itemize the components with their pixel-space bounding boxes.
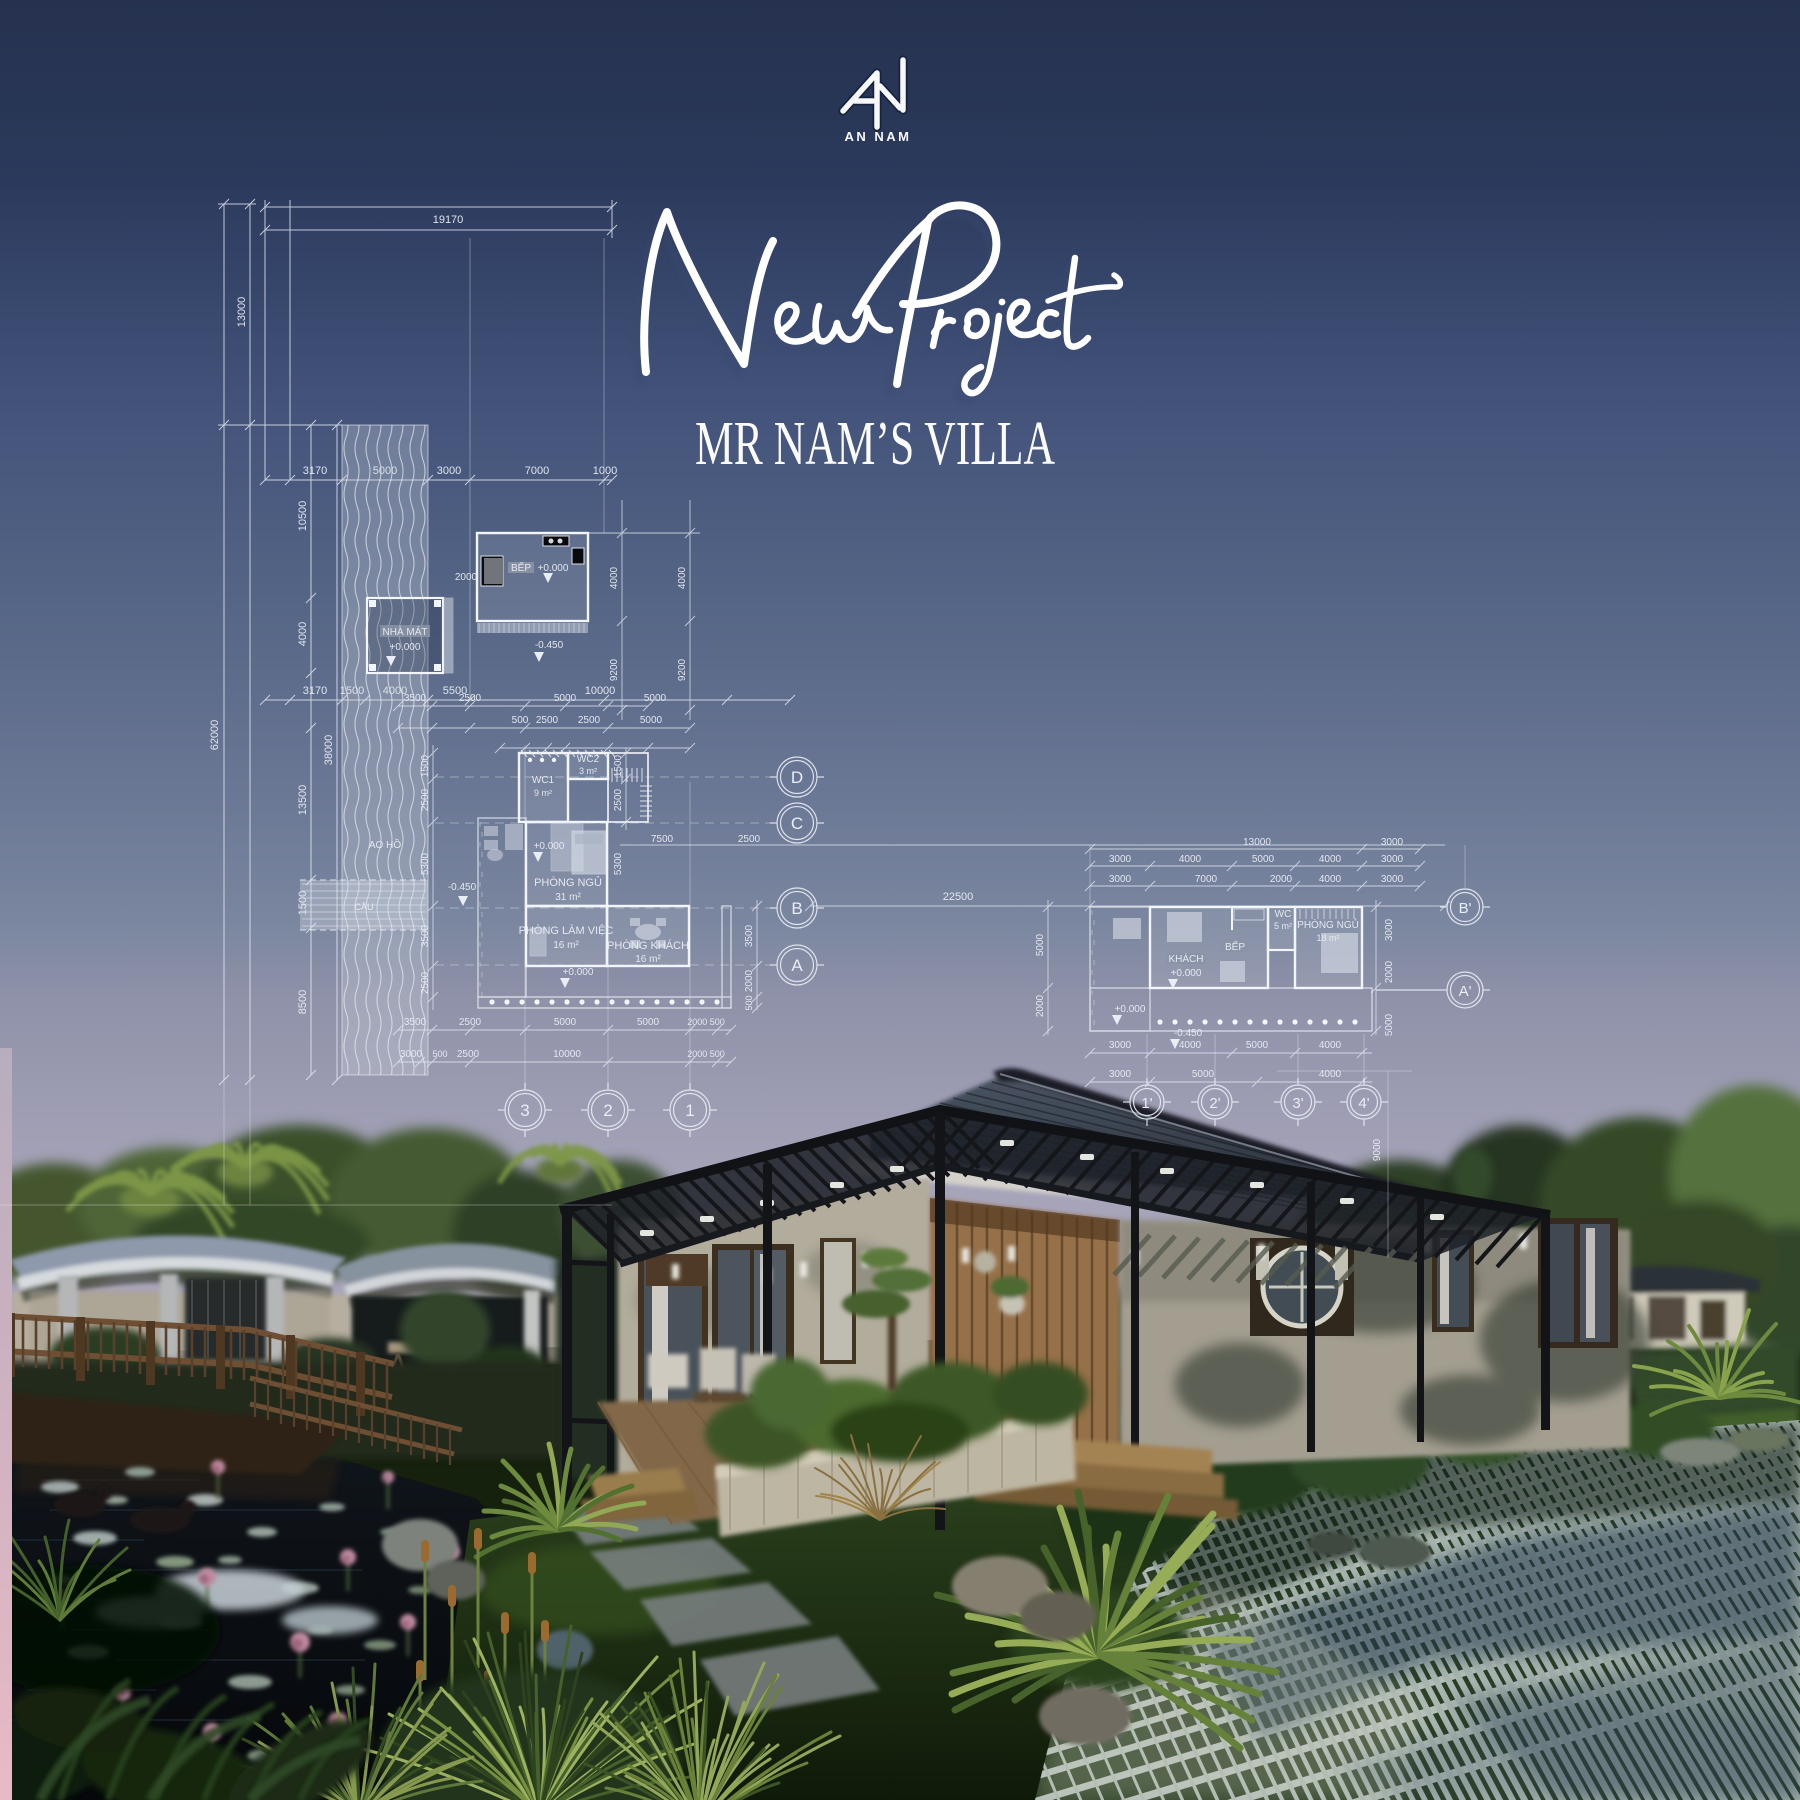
svg-text:9200: 9200 bbox=[609, 658, 620, 681]
svg-text:2': 2' bbox=[1209, 1095, 1220, 1112]
svg-text:31 m²: 31 m² bbox=[555, 892, 581, 903]
svg-text:500: 500 bbox=[432, 1049, 447, 1059]
svg-text:3170: 3170 bbox=[303, 685, 327, 697]
svg-text:38000: 38000 bbox=[323, 735, 335, 766]
svg-text:PHÒNG KHÁCH: PHÒNG KHÁCH bbox=[607, 939, 689, 952]
svg-text:2500: 2500 bbox=[738, 834, 761, 845]
svg-text:C: C bbox=[791, 814, 803, 833]
svg-text:5000: 5000 bbox=[554, 693, 577, 704]
svg-text:CẦU: CẦU bbox=[354, 902, 373, 912]
svg-text:16 m²: 16 m² bbox=[553, 940, 579, 951]
svg-text:13000: 13000 bbox=[1243, 837, 1271, 848]
svg-text:3500: 3500 bbox=[404, 1017, 427, 1028]
svg-text:7000: 7000 bbox=[525, 465, 549, 477]
svg-text:2: 2 bbox=[603, 1101, 612, 1120]
svg-text:10000: 10000 bbox=[585, 685, 616, 697]
svg-text:D: D bbox=[791, 768, 803, 787]
svg-text:3500: 3500 bbox=[404, 693, 427, 704]
svg-text:22500: 22500 bbox=[943, 891, 974, 903]
svg-text:+0.000: +0.000 bbox=[1115, 1004, 1146, 1015]
svg-text:3000: 3000 bbox=[1381, 837, 1404, 848]
svg-text:10500: 10500 bbox=[297, 501, 309, 532]
svg-text:2500: 2500 bbox=[420, 788, 431, 811]
svg-text:3000: 3000 bbox=[1109, 1069, 1132, 1080]
svg-text:4000: 4000 bbox=[677, 566, 688, 589]
svg-text:3000: 3000 bbox=[1381, 854, 1404, 865]
svg-text:2500: 2500 bbox=[457, 1049, 480, 1060]
svg-text:7500: 7500 bbox=[651, 834, 674, 845]
svg-text:5000: 5000 bbox=[644, 693, 667, 704]
svg-text:-0.450: -0.450 bbox=[1174, 1028, 1203, 1039]
svg-text:9000: 9000 bbox=[1372, 1138, 1383, 1161]
svg-text:3170: 3170 bbox=[303, 465, 327, 477]
svg-text:MR NAM’S VILLA: MR NAM’S VILLA bbox=[695, 410, 1055, 478]
svg-text:PHÒNG NGỦ: PHÒNG NGỦ bbox=[1297, 918, 1359, 931]
svg-text:62000: 62000 bbox=[209, 720, 221, 751]
svg-text:2000: 2000 bbox=[455, 572, 478, 583]
svg-text:2500: 2500 bbox=[420, 971, 431, 994]
svg-text:7000: 7000 bbox=[1195, 874, 1218, 885]
svg-text:-0.450: -0.450 bbox=[535, 640, 564, 651]
svg-text:3000: 3000 bbox=[1109, 1040, 1132, 1051]
svg-text:2000: 2000 bbox=[1270, 874, 1293, 885]
svg-text:4000: 4000 bbox=[1319, 1040, 1342, 1051]
svg-text:5000: 5000 bbox=[1384, 1013, 1395, 1036]
svg-text:2000 500: 2000 500 bbox=[687, 1017, 725, 1027]
svg-text:19170: 19170 bbox=[433, 214, 464, 226]
svg-text:16 m²: 16 m² bbox=[635, 954, 661, 965]
svg-text:2500: 2500 bbox=[459, 693, 482, 704]
svg-text:5000: 5000 bbox=[637, 1017, 660, 1028]
svg-text:10000: 10000 bbox=[553, 1049, 581, 1060]
svg-text:3 m²: 3 m² bbox=[579, 766, 597, 776]
svg-text:5000: 5000 bbox=[1252, 854, 1275, 865]
svg-text:3000: 3000 bbox=[1384, 918, 1395, 941]
svg-text:4000: 4000 bbox=[609, 566, 620, 589]
svg-text:4000: 4000 bbox=[1319, 854, 1342, 865]
svg-text:5000: 5000 bbox=[1035, 933, 1046, 956]
svg-text:3000: 3000 bbox=[1381, 874, 1404, 885]
svg-text:1: 1 bbox=[685, 1101, 694, 1120]
svg-text:B': B' bbox=[1459, 900, 1472, 917]
svg-text:+0.000: +0.000 bbox=[538, 563, 569, 574]
svg-text:1': 1' bbox=[1141, 1095, 1152, 1112]
svg-text:4000: 4000 bbox=[1179, 854, 1202, 865]
svg-text:3000: 3000 bbox=[1109, 854, 1132, 865]
svg-text:AO HỒ: AO HỒ bbox=[369, 838, 401, 851]
svg-text:BẾP: BẾP bbox=[511, 561, 531, 574]
svg-text:4000: 4000 bbox=[297, 622, 309, 646]
svg-text:NHÀ MÁT: NHÀ MÁT bbox=[383, 625, 428, 638]
svg-text:WC: WC bbox=[1275, 909, 1292, 920]
svg-text:4000: 4000 bbox=[1319, 1069, 1342, 1080]
svg-text:8500: 8500 bbox=[297, 990, 309, 1014]
svg-text:2000: 2000 bbox=[1035, 994, 1046, 1017]
svg-text:+0.000: +0.000 bbox=[390, 642, 421, 653]
svg-text:5 m²: 5 m² bbox=[1274, 921, 1292, 931]
svg-text:3000: 3000 bbox=[400, 1049, 423, 1060]
svg-text:13500: 13500 bbox=[297, 785, 309, 816]
svg-text:3500: 3500 bbox=[420, 924, 431, 947]
svg-text:2000 500: 2000 500 bbox=[687, 1049, 725, 1059]
svg-text:2000: 2000 bbox=[1384, 960, 1395, 983]
svg-text:2500: 2500 bbox=[578, 715, 601, 726]
svg-text:PHÒNG LÀM VIỆC: PHÒNG LÀM VIỆC bbox=[519, 924, 614, 937]
svg-text:500: 500 bbox=[512, 715, 529, 726]
svg-text:+0.000: +0.000 bbox=[534, 841, 565, 852]
svg-text:5300: 5300 bbox=[613, 852, 624, 875]
svg-text:B: B bbox=[791, 899, 802, 918]
svg-text:+0.000: +0.000 bbox=[1171, 968, 1202, 979]
svg-text:5000: 5000 bbox=[554, 1017, 577, 1028]
svg-text:4000: 4000 bbox=[1319, 874, 1342, 885]
svg-text:5000: 5000 bbox=[1192, 1069, 1215, 1080]
svg-text:3000: 3000 bbox=[1109, 874, 1132, 885]
svg-text:3500: 3500 bbox=[744, 924, 755, 947]
svg-text:5300: 5300 bbox=[420, 852, 431, 875]
svg-text:PHÒNG NGỦ: PHÒNG NGỦ bbox=[534, 876, 602, 889]
svg-text:BẾP: BẾP bbox=[1225, 940, 1245, 953]
svg-text:5000: 5000 bbox=[640, 715, 663, 726]
svg-text:2500: 2500 bbox=[459, 1017, 482, 1028]
svg-text:KHÁCH: KHÁCH bbox=[1168, 952, 1203, 965]
svg-text:9200: 9200 bbox=[677, 658, 688, 681]
svg-text:500: 500 bbox=[744, 995, 754, 1010]
svg-text:13000: 13000 bbox=[236, 297, 248, 328]
svg-text:A': A' bbox=[1459, 983, 1472, 1000]
svg-text:5000: 5000 bbox=[1246, 1040, 1269, 1051]
svg-text:2000: 2000 bbox=[744, 969, 755, 992]
svg-text:3': 3' bbox=[1292, 1095, 1303, 1112]
svg-text:4': 4' bbox=[1358, 1095, 1369, 1112]
svg-text:1500: 1500 bbox=[613, 754, 624, 777]
svg-text:-0.450: -0.450 bbox=[448, 882, 477, 893]
svg-text:4000: 4000 bbox=[1179, 1040, 1202, 1051]
svg-text:3: 3 bbox=[520, 1101, 529, 1120]
svg-text:9 m²: 9 m² bbox=[534, 788, 552, 798]
svg-text:1000: 1000 bbox=[593, 465, 617, 477]
svg-text:+0.000: +0.000 bbox=[563, 967, 594, 978]
svg-text:2500: 2500 bbox=[613, 788, 624, 811]
svg-text:18 m²: 18 m² bbox=[1316, 933, 1339, 943]
svg-text:A: A bbox=[791, 956, 803, 975]
svg-text:AN NAM: AN NAM bbox=[845, 129, 912, 144]
svg-text:2500: 2500 bbox=[536, 715, 559, 726]
svg-text:3000: 3000 bbox=[437, 465, 461, 477]
svg-text:1500: 1500 bbox=[420, 754, 431, 777]
svg-text:WC2: WC2 bbox=[577, 754, 600, 765]
